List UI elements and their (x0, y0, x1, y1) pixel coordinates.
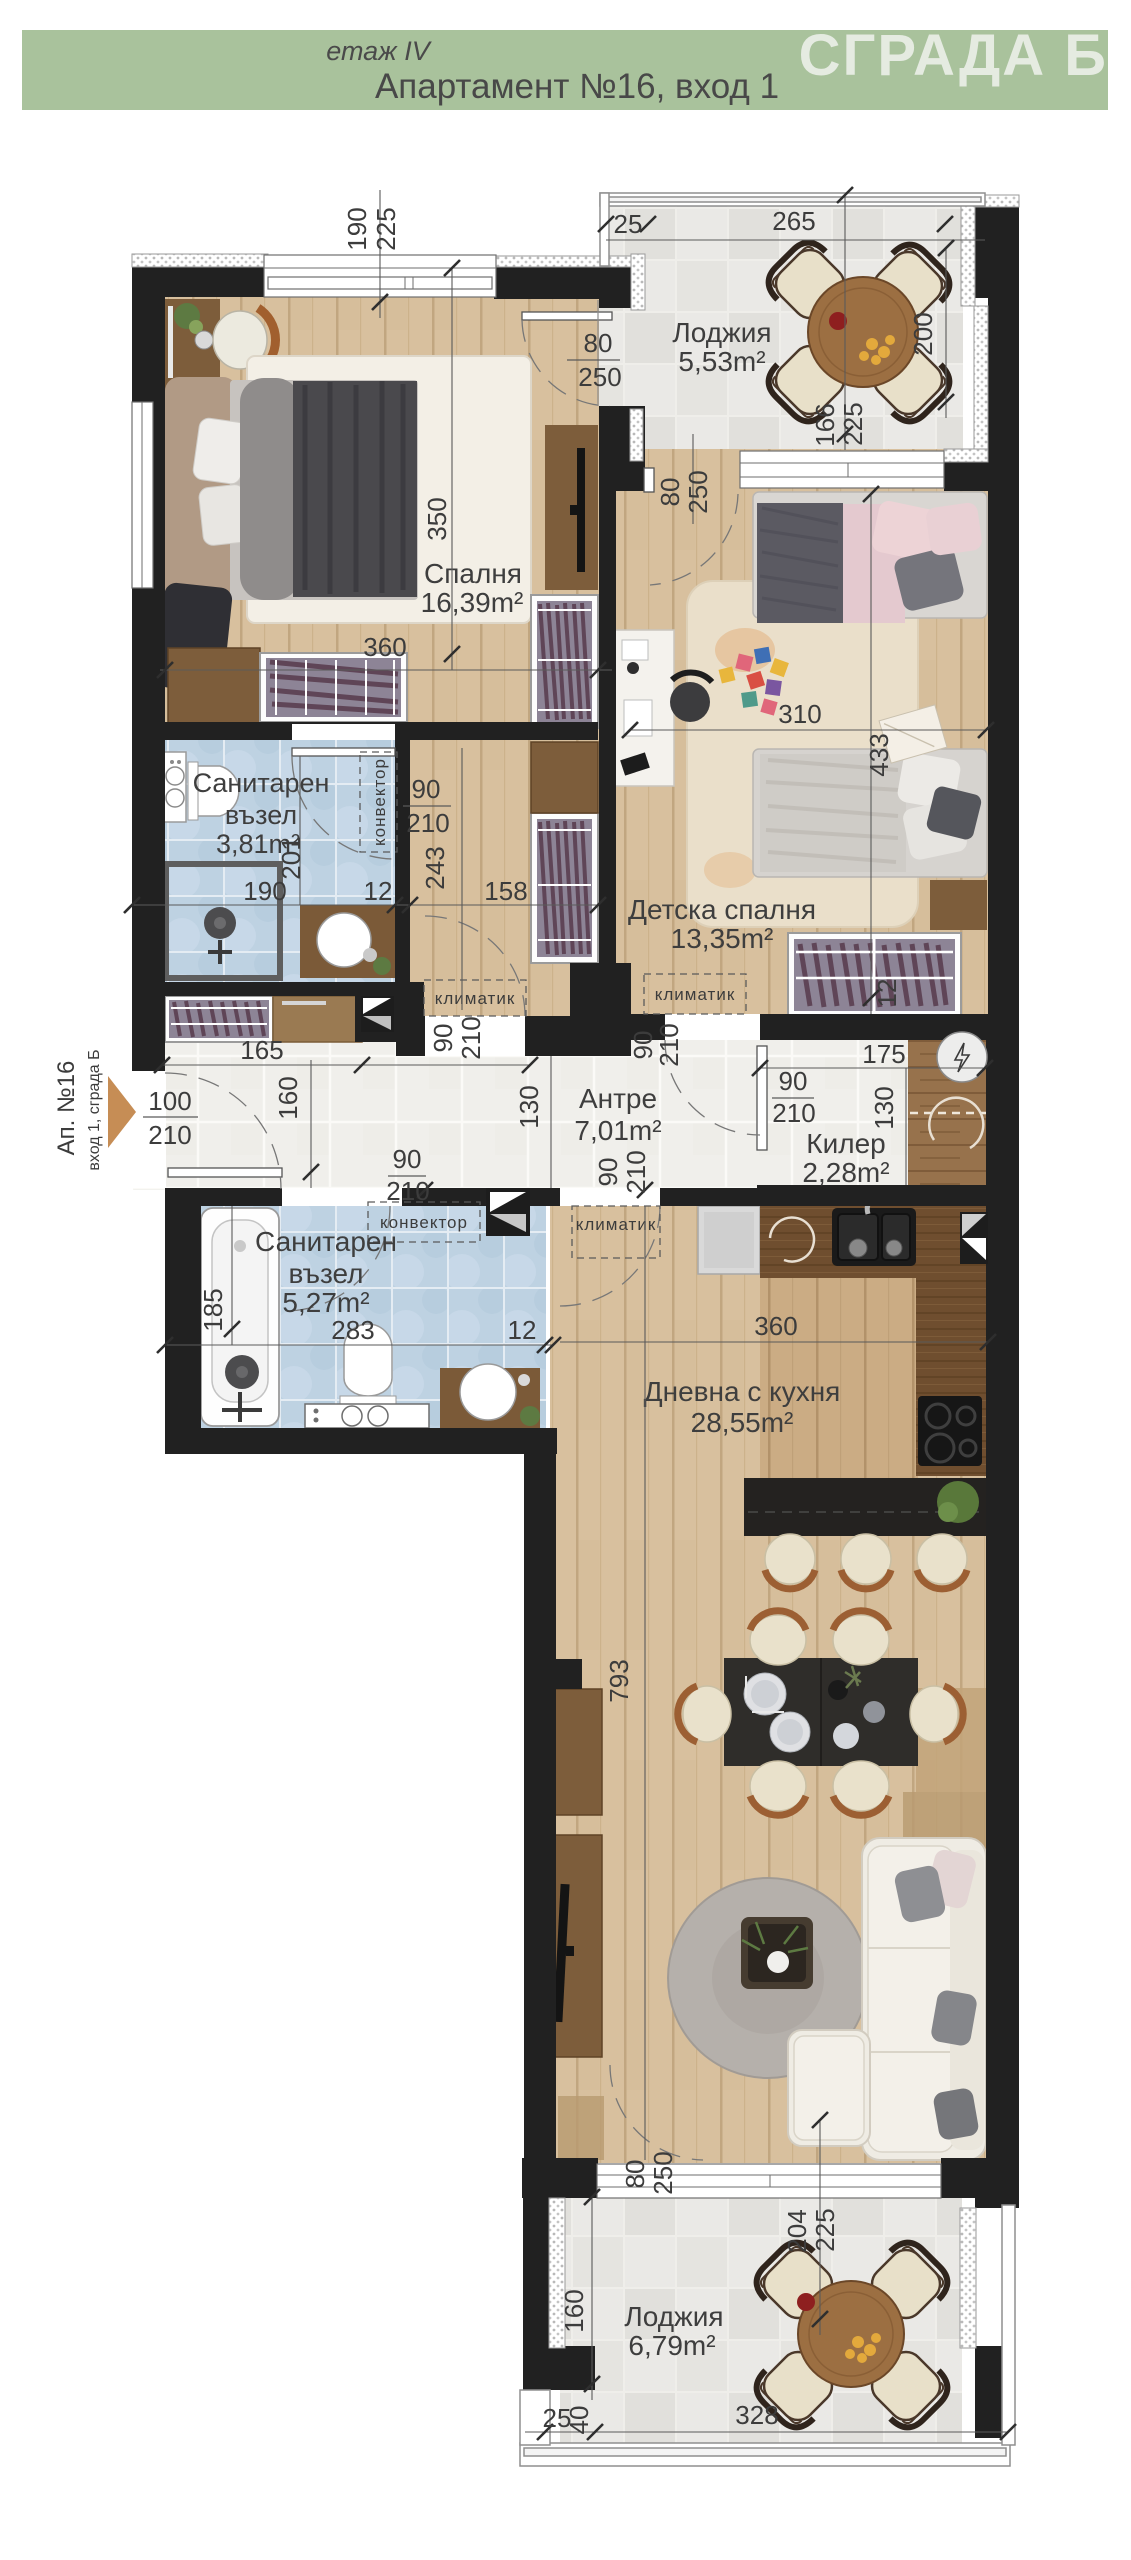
svg-text:80: 80 (584, 328, 613, 358)
svg-text:185: 185 (198, 1288, 228, 1331)
svg-text:165: 165 (240, 1035, 283, 1065)
svg-text:130: 130 (869, 1086, 899, 1129)
svg-text:5,27m²: 5,27m² (282, 1287, 369, 1318)
svg-text:283: 283 (331, 1315, 374, 1345)
svg-text:възел: възел (225, 800, 297, 830)
svg-text:Дневна с кухня: Дневна с кухня (644, 1376, 841, 1407)
svg-text:350: 350 (422, 497, 452, 540)
svg-text:Лоджия: Лоджия (624, 2301, 723, 2332)
svg-text:12: 12 (364, 876, 393, 906)
svg-text:201: 201 (276, 836, 306, 879)
svg-text:вход 1, сграда Б: вход 1, сграда Б (86, 1049, 103, 1170)
svg-text:Детска спалня: Детска спалня (628, 894, 816, 925)
svg-text:климатик: климатик (576, 1215, 657, 1234)
svg-text:Спалня: Спалня (424, 558, 522, 589)
svg-text:328: 328 (735, 2400, 778, 2430)
svg-text:климатик: климатик (435, 989, 516, 1008)
svg-text:конвектор: конвектор (370, 758, 389, 846)
svg-text:6,79m²: 6,79m² (628, 2330, 715, 2361)
svg-text:13,35m²: 13,35m² (671, 923, 774, 954)
svg-text:2,28m²: 2,28m² (802, 1157, 889, 1188)
svg-text:265: 265 (772, 206, 815, 236)
svg-text:360: 360 (754, 1311, 797, 1341)
svg-text:243: 243 (420, 846, 450, 889)
svg-text:12: 12 (872, 979, 902, 1008)
svg-text:80: 80 (655, 478, 685, 507)
svg-text:12: 12 (508, 1315, 537, 1345)
svg-text:етаж IV: етаж IV (326, 36, 432, 66)
svg-text:200: 200 (908, 312, 938, 355)
svg-text:166: 166 (810, 403, 840, 446)
svg-text:433: 433 (864, 733, 894, 776)
svg-text:793: 793 (604, 1659, 634, 1702)
svg-text:Килер: Килер (806, 1128, 885, 1159)
svg-text:210: 210 (386, 1176, 429, 1206)
svg-text:Лоджия: Лоджия (672, 317, 771, 348)
svg-text:310: 310 (778, 699, 821, 729)
svg-text:204: 204 (782, 2209, 812, 2252)
svg-text:7,01m²: 7,01m² (574, 1115, 661, 1146)
svg-text:210: 210 (621, 1150, 651, 1193)
svg-text:225: 225 (371, 207, 401, 250)
svg-text:210: 210 (772, 1098, 815, 1128)
svg-text:климатик: климатик (655, 985, 736, 1004)
svg-text:250: 250 (578, 362, 621, 392)
svg-text:възел: възел (289, 1258, 364, 1289)
svg-text:158: 158 (484, 876, 527, 906)
svg-text:160: 160 (273, 1076, 303, 1119)
svg-text:90: 90 (593, 1158, 623, 1187)
svg-text:Санитарен: Санитарен (193, 768, 330, 798)
svg-text:25: 25 (614, 209, 643, 239)
svg-text:210: 210 (406, 808, 449, 838)
svg-text:Апартамент №16, вход 1: Апартамент №16, вход 1 (375, 67, 779, 106)
svg-text:5,53m²: 5,53m² (678, 346, 765, 377)
svg-text:90: 90 (412, 774, 441, 804)
svg-text:90: 90 (393, 1144, 422, 1174)
svg-text:225: 225 (838, 402, 868, 445)
svg-text:Ап. №16: Ап. №16 (53, 1061, 80, 1156)
svg-text:225: 225 (810, 2208, 840, 2251)
svg-text:190: 190 (342, 207, 372, 250)
svg-text:16,39m²: 16,39m² (421, 587, 524, 618)
svg-text:250: 250 (683, 470, 713, 513)
svg-text:250: 250 (648, 2151, 678, 2194)
svg-text:210: 210 (654, 1023, 684, 1066)
svg-text:100: 100 (148, 1086, 191, 1116)
svg-text:СГРАДА Б: СГРАДА Б (799, 23, 1108, 88)
svg-text:Антре: Антре (579, 1083, 657, 1114)
svg-text:90: 90 (779, 1066, 808, 1096)
svg-text:210: 210 (456, 1016, 486, 1059)
svg-text:130: 130 (514, 1085, 544, 1128)
svg-text:28,55m²: 28,55m² (691, 1407, 794, 1438)
svg-text:175: 175 (862, 1039, 905, 1069)
svg-text:90: 90 (428, 1024, 458, 1053)
svg-text:40: 40 (564, 2406, 594, 2435)
svg-text:360: 360 (363, 632, 406, 662)
svg-text:80: 80 (620, 2160, 650, 2189)
svg-text:210: 210 (148, 1120, 191, 1150)
svg-text:Санитарен: Санитарен (255, 1226, 397, 1257)
svg-text:160: 160 (559, 2289, 589, 2332)
